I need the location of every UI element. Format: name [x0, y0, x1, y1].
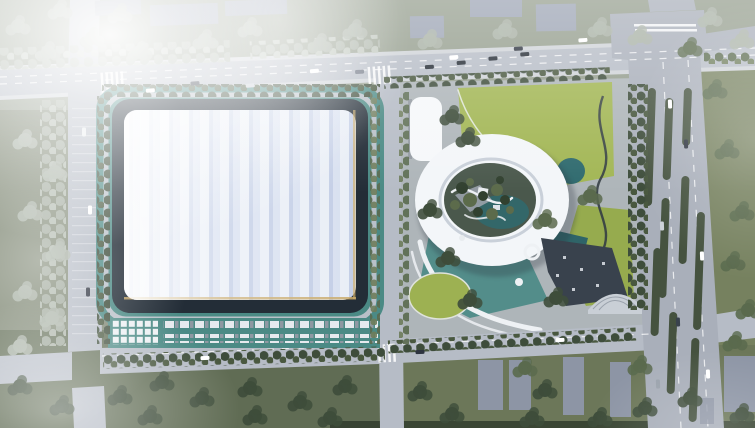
- aerial-render-canvas: [0, 0, 755, 428]
- atmosphere: [0, 0, 755, 428]
- masterplan-svg: [0, 0, 755, 428]
